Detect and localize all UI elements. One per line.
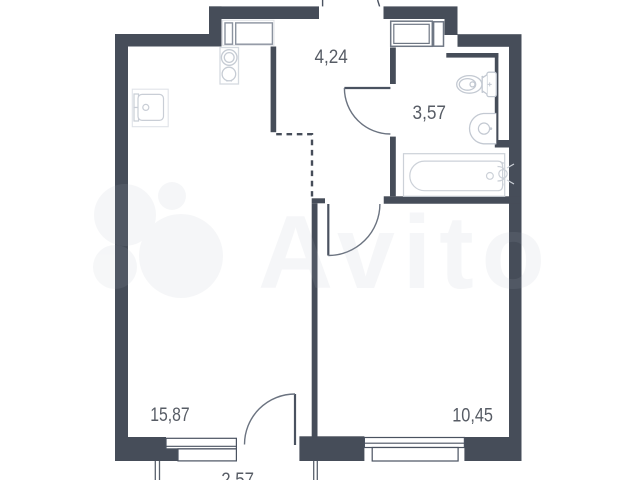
svg-text:3,57: 3,57 bbox=[413, 102, 447, 124]
svg-text:15,87: 15,87 bbox=[150, 404, 189, 426]
svg-text:10,45: 10,45 bbox=[452, 404, 493, 426]
svg-text:2,57: 2,57 bbox=[221, 469, 254, 480]
svg-text:4,24: 4,24 bbox=[315, 46, 348, 68]
